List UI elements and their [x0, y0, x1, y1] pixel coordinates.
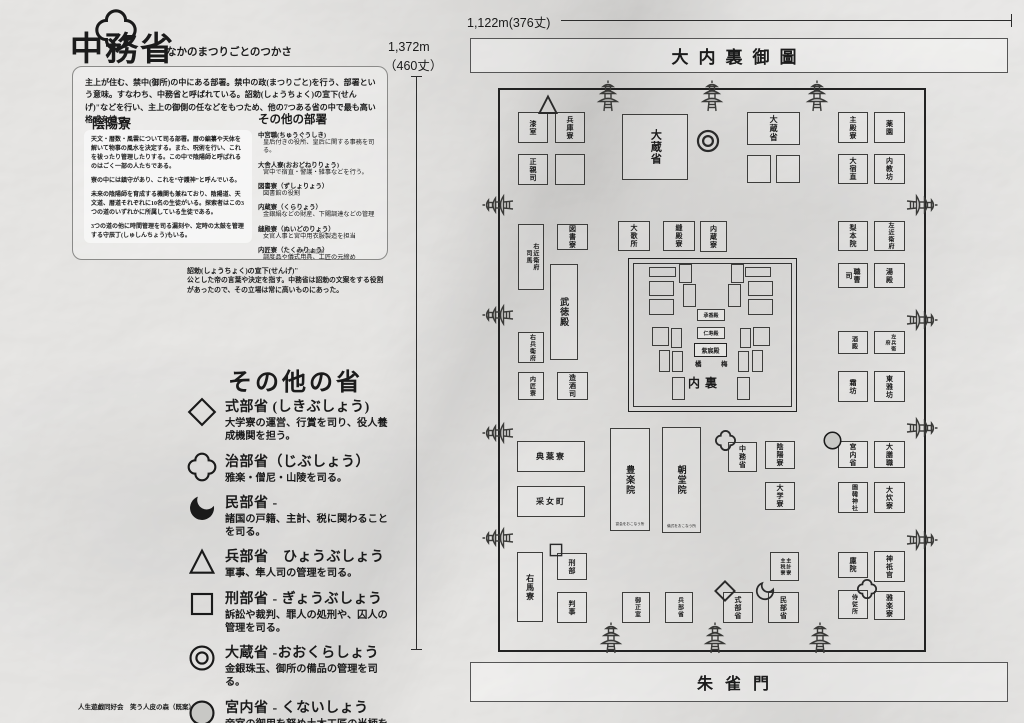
- map-building-造酒司: 造酒司: [557, 372, 588, 400]
- map-building-廩院: 廩院: [838, 552, 868, 578]
- map-building-大膳職: 大膳職: [874, 441, 905, 468]
- map-building-陰陽寮: 陰陽寮: [765, 441, 795, 469]
- inner-palace-building: [683, 284, 696, 307]
- map-building-図書寮: 図書寮: [557, 224, 588, 250]
- inner-palace-building: [728, 284, 741, 307]
- west-wall-gate-icon: [482, 193, 514, 217]
- building-subtitle: 儀式をおこなう所: [665, 523, 698, 528]
- map-marker-flower-icon: [714, 429, 737, 452]
- map-marker-dcircle-icon: [694, 127, 722, 155]
- inner-palace-building: [659, 350, 670, 372]
- inner-palace-building: [740, 328, 751, 348]
- map-marker-triangle-icon: [536, 93, 560, 117]
- map-building-主殿寮: 主殿寮: [838, 112, 868, 143]
- map-marker-circle-icon: [821, 429, 844, 452]
- map-building-縫殿寮: 縫殿寮: [663, 221, 695, 251]
- inner-palace-building: [672, 351, 683, 372]
- map-building-大蔵省: 大蔵省: [747, 112, 800, 145]
- south-wall-gate-icon: [808, 622, 832, 654]
- map-building-御正室: 御正室: [622, 592, 650, 623]
- map-building-主計寮: 主計寮 主税寮: [770, 552, 799, 581]
- inner-palace-building: [649, 281, 674, 296]
- map-marker-square-icon: [547, 541, 565, 559]
- inner-palace-hall-仁寿殿: 仁寿殿: [697, 327, 725, 339]
- east-wall-gate-icon: [906, 528, 938, 552]
- map-building-典薬寮: 典薬寮: [517, 441, 585, 472]
- map-building-神祇官: 神祇官: [874, 551, 905, 582]
- inner-palace-hall-紫宸殿: 紫宸殿: [694, 343, 727, 357]
- west-wall-gate-icon: [482, 526, 514, 550]
- map-building-雅楽寮: 雅楽寮: [874, 591, 905, 620]
- map-building-内教坊: 内教坊: [874, 154, 905, 184]
- west-wall-gate-icon: [482, 303, 514, 327]
- inner-palace-building: [752, 350, 763, 372]
- map-building-兵部省: 兵部省: [665, 592, 693, 623]
- map-building-大炊寮: 大炊寮: [874, 482, 905, 513]
- inner-palace-building: [671, 328, 682, 348]
- map-building-大歌所: 大歌所: [618, 221, 650, 251]
- inner-palace-building: [738, 351, 749, 372]
- map-building-薬園: 薬園: [874, 112, 905, 143]
- tachibana-tree-label: 橘: [695, 358, 702, 368]
- map-building-左兵衛府: 左兵衛府: [874, 331, 905, 354]
- map-building-采女町: 采女町: [517, 486, 585, 517]
- map-building-大学寮: 大学寮: [765, 482, 795, 510]
- map-building-朝堂院: 朝堂院儀式をおこなう所: [662, 427, 701, 533]
- inner-palace-name: 内裏: [688, 374, 722, 391]
- south-wall-gate-icon: [703, 622, 727, 654]
- east-wall-gate-icon: [906, 416, 938, 440]
- suzakumon-gate-label: 朱雀門: [470, 662, 1008, 702]
- inner-palace-building: [649, 299, 674, 315]
- map-marker-crescent-icon: [754, 580, 776, 602]
- inner-palace-building: [679, 264, 692, 283]
- north-wall-gate-icon: [805, 80, 829, 112]
- inner-palace-building: [748, 281, 773, 296]
- palace-map: 漆室兵庫寮正親司大蔵省大蔵省主殿寮薬園大宿直内教坊右近衛府 司馬図書寮大歌所縫殿…: [0, 0, 1024, 723]
- map-building-大宿直: 大宿直: [838, 154, 868, 184]
- inner-palace-building: [745, 267, 771, 277]
- map-building-内蔵寮: 内蔵寮: [700, 221, 727, 252]
- map-building-unnamed: [747, 155, 771, 183]
- map-building-内匠寮: 内匠寮: [518, 372, 544, 400]
- ume-tree-label: 梅: [721, 358, 728, 368]
- map-building-unnamed: [555, 154, 585, 185]
- map-building-左近衛府: 左近衛府: [874, 221, 905, 251]
- inner-palace-building: [737, 377, 750, 400]
- inner-palace-hall-承香殿: 承香殿: [697, 309, 725, 321]
- map-building-酒殿: 酒殿: [838, 331, 868, 354]
- inner-palace-building: [649, 267, 676, 277]
- map-marker-diamond-icon: [713, 579, 737, 603]
- inner-palace-building: [672, 377, 685, 400]
- map-building-正親司: 正親司: [518, 154, 548, 185]
- map-building-職曹司: 職曹司: [838, 263, 868, 288]
- map-building-湯殿: 湯殿: [874, 263, 905, 288]
- north-wall-gate-icon: [700, 80, 724, 112]
- handout-page: 中務省 なかのまつりごとのつかさ 主上が住む、禁中(御所)の中にある部署。禁中の…: [0, 0, 1024, 723]
- map-building-右兵衛府: 右兵衛府: [518, 332, 544, 363]
- inner-palace-building: [748, 299, 773, 315]
- map-building-unnamed: [776, 155, 800, 183]
- west-wall-gate-icon: [482, 421, 514, 445]
- inner-palace-building: [652, 327, 669, 346]
- east-wall-gate-icon: [906, 193, 938, 217]
- east-wall-gate-icon: [906, 308, 938, 332]
- north-wall-gate-icon: [596, 80, 620, 112]
- building-subtitle: 宴会をおこなう所: [613, 521, 647, 526]
- map-building-園韓神社: 園韓神社: [838, 482, 868, 513]
- map-building-判事: 判事: [557, 592, 587, 623]
- map-building-右馬寮: 右馬寮: [517, 552, 543, 622]
- map-building-右近衛府: 右近衛府 司馬: [518, 224, 544, 290]
- map-building-東雅坊: 東雅坊: [874, 371, 905, 402]
- south-wall-gate-icon: [599, 622, 623, 654]
- inner-palace-building: [753, 327, 770, 346]
- inner-palace-building: [731, 264, 744, 283]
- map-building-梨本院: 梨本院: [838, 221, 868, 251]
- map-marker-clover-icon: [856, 578, 878, 600]
- map-building-豊楽院: 豊楽院宴会をおこなう所: [610, 428, 650, 531]
- map-building-大蔵省: 大蔵省: [622, 114, 688, 180]
- map-building-霜坊: 霜坊: [838, 371, 868, 402]
- map-building-武徳殿: 武徳殿: [550, 264, 578, 360]
